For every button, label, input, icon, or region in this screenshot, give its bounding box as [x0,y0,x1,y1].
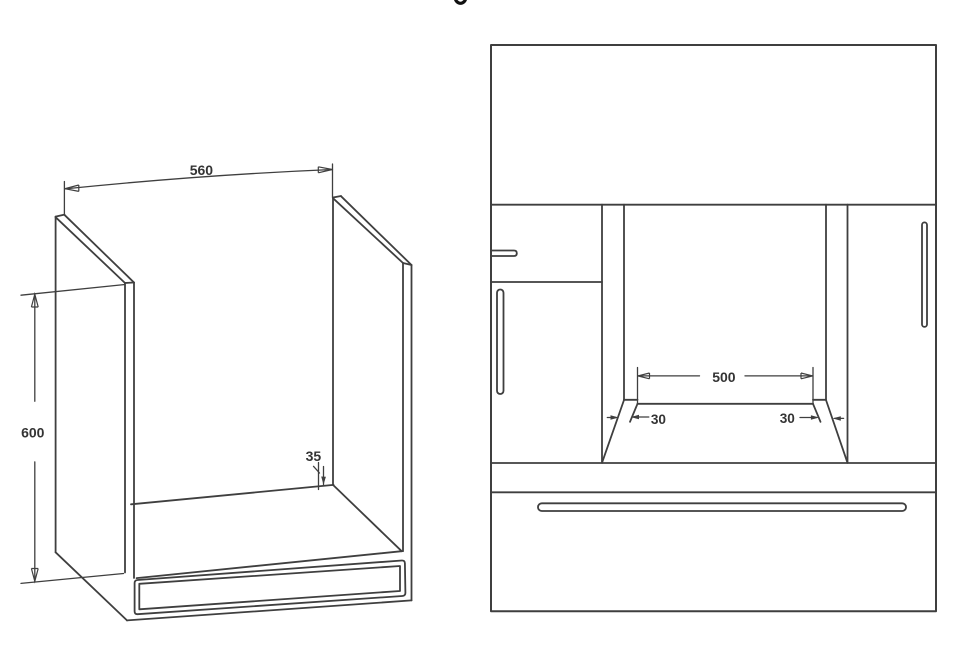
svg-text:30: 30 [651,412,666,427]
svg-text:500: 500 [712,369,736,385]
svg-text:600: 600 [21,424,45,440]
svg-text:30: 30 [780,411,795,426]
svg-text:560: 560 [190,162,214,178]
svg-text:35: 35 [306,448,322,464]
